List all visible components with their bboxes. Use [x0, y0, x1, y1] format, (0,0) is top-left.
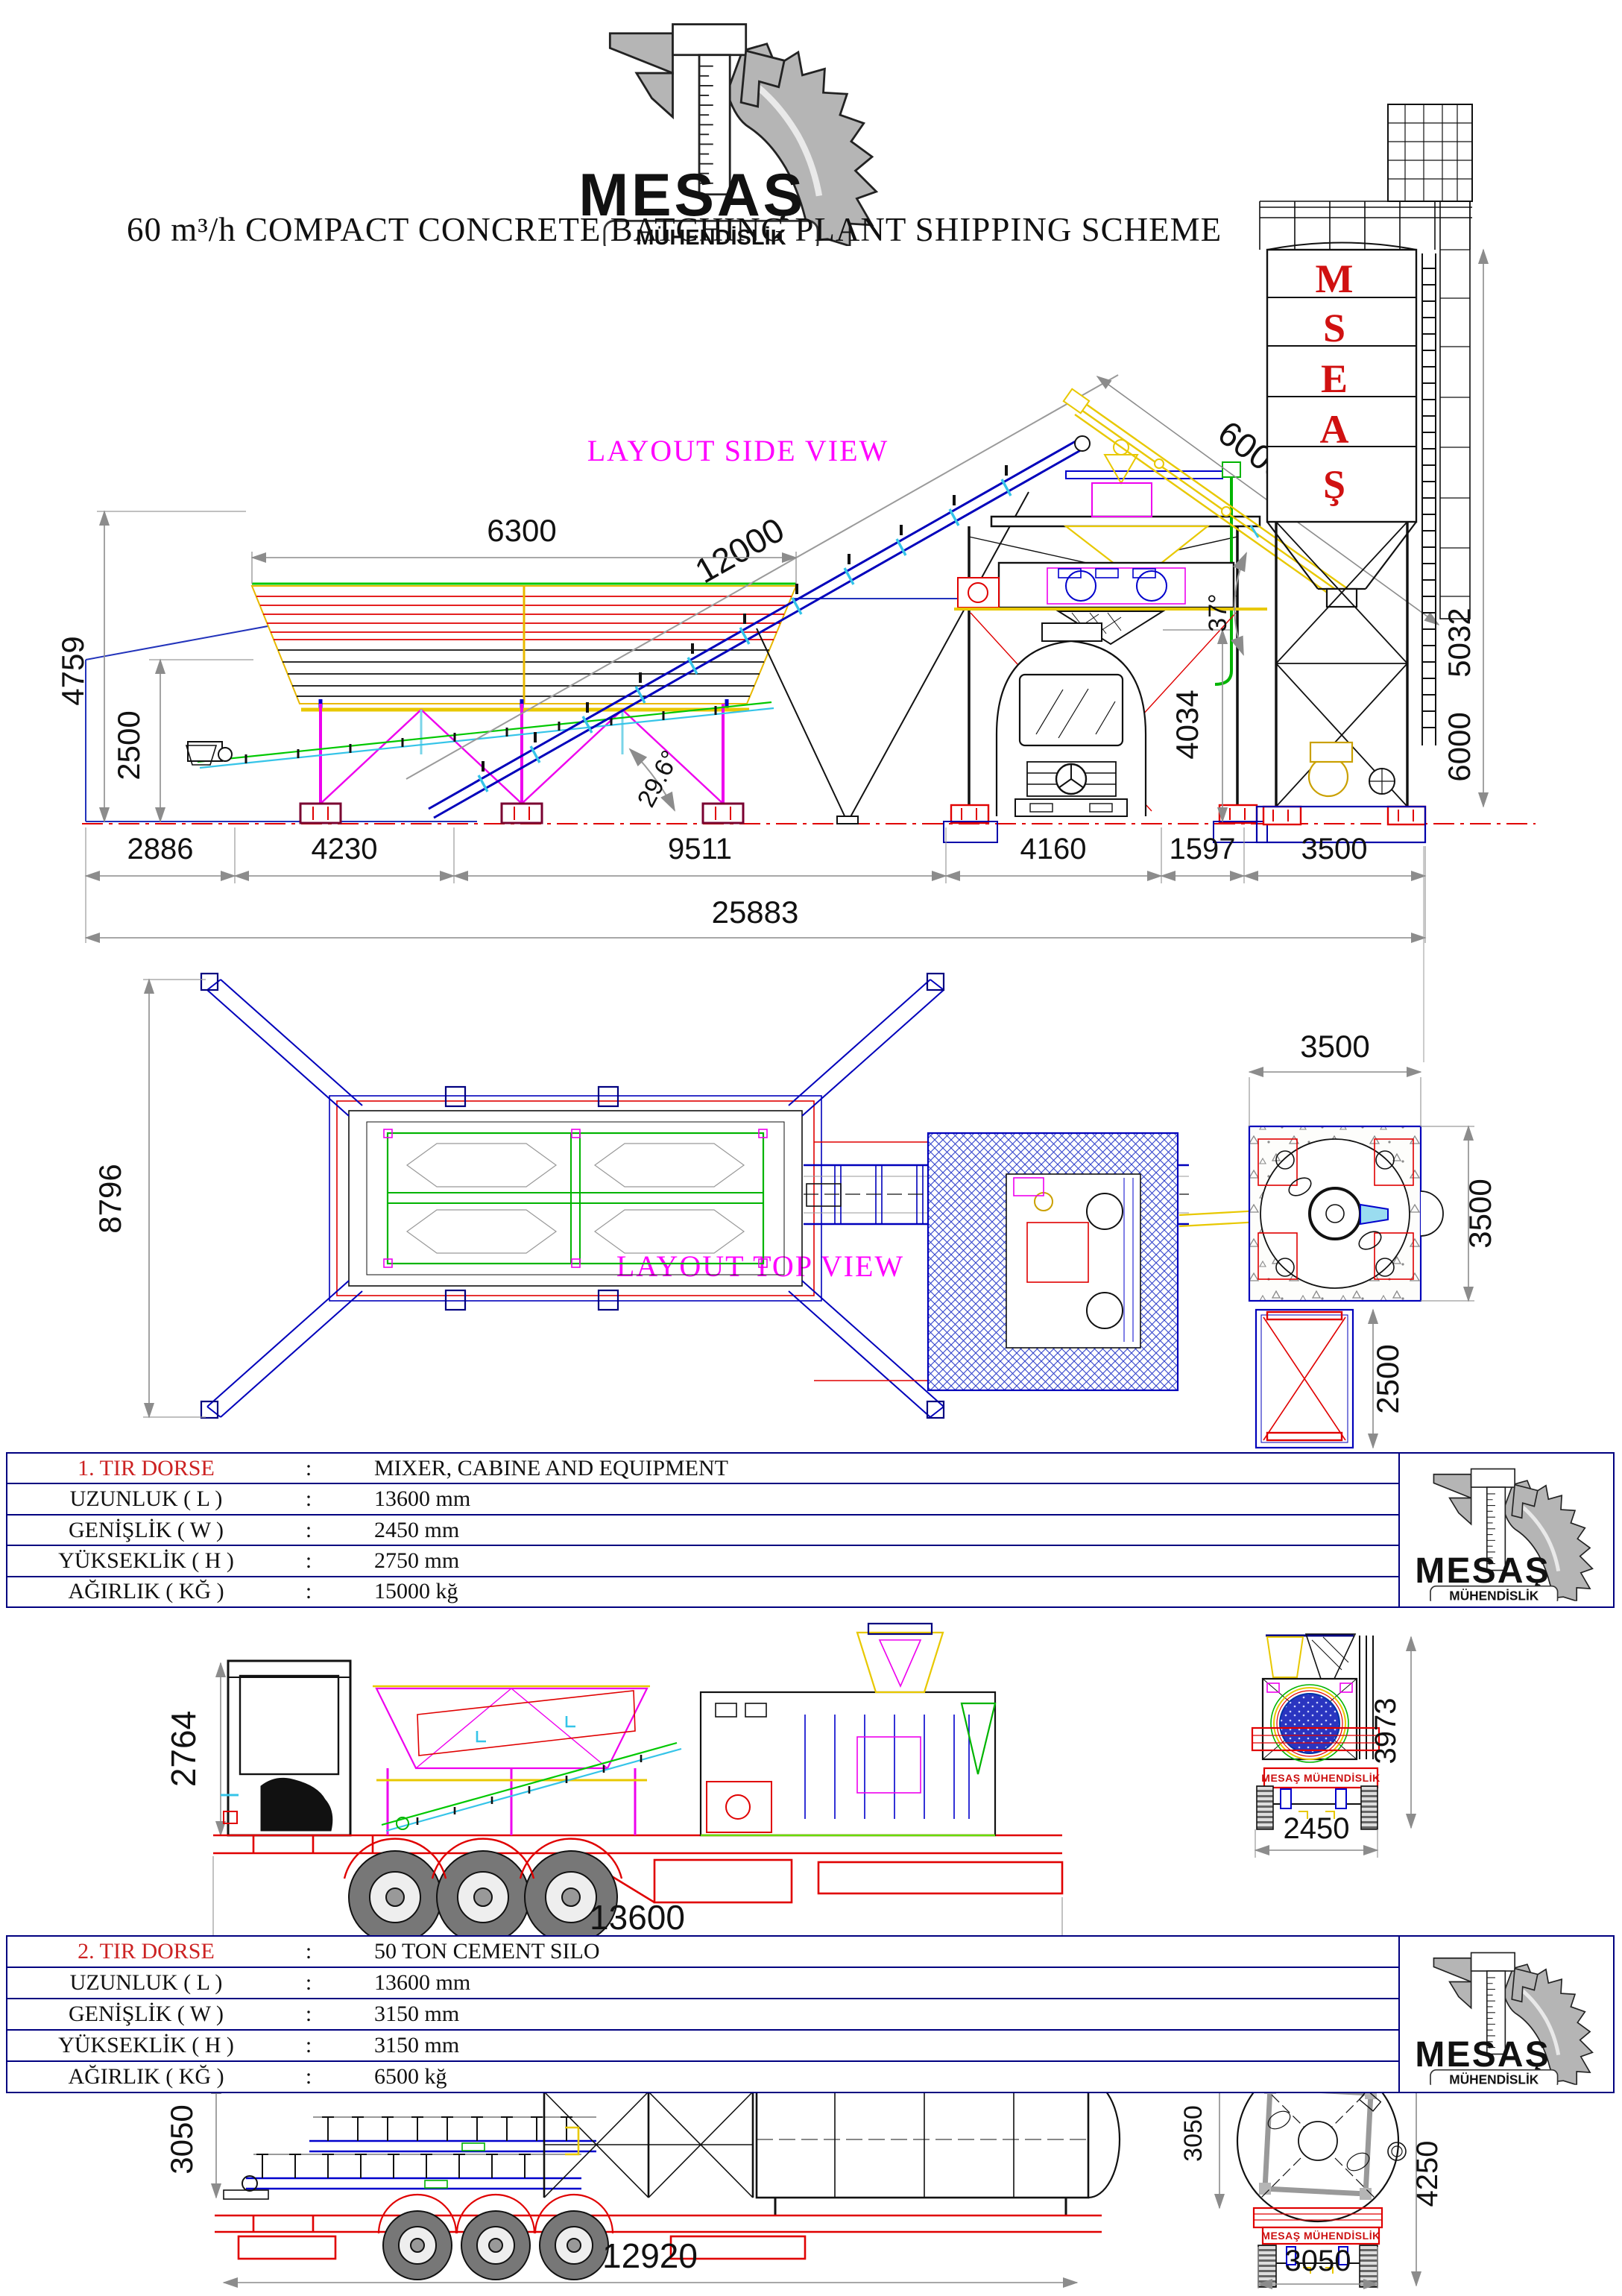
truck2-drawing: 3050: [164, 2060, 1444, 2289]
truck1-load-bin: [373, 1686, 681, 1835]
dim-silo-lower: 6000: [1442, 712, 1477, 781]
truck1-wheels: [344, 1839, 622, 1943]
table2-row-height: YÜKSEKLİK ( H ) : 3150 mm: [7, 2031, 1398, 2062]
table1-row4-colon: :: [285, 1579, 332, 1604]
spec-table-1: 1. TIR DORSE : MIXER, CABINE AND EQUIPME…: [6, 1452, 1615, 1608]
table1-row1-label: UZUNLUK ( L ): [7, 1486, 285, 1512]
compressor: [1309, 742, 1395, 796]
truck2-side: 3050: [164, 2080, 1120, 2283]
dim-chain-4: 4160: [1020, 833, 1087, 865]
dim-mixer-clearance: 4034: [1170, 690, 1205, 759]
dim-chain-6: 3500: [1301, 833, 1368, 865]
mixer-truck: [997, 623, 1146, 816]
silo-pad-top: 3500 3500: [1249, 846, 1498, 1301]
silo-ladder: [1422, 253, 1436, 745]
cabin-top: 2500: [1256, 1310, 1405, 1448]
table1-row-weight: AĞIRLIK ( KĞ ) : 15000 kğ: [7, 1577, 1398, 1606]
table2-colon: :: [285, 1939, 332, 1964]
table1-row2-colon: :: [285, 1518, 332, 1543]
table2-title-row: 2. TIR DORSE : 50 TON CEMENT SILO: [7, 1937, 1398, 1968]
truck2-silo-structure: [533, 2081, 1120, 2215]
dim-pit-height: 4759: [55, 636, 90, 705]
table1-row2-label: GENİŞLİK ( W ): [7, 1518, 285, 1543]
table2-row3-colon: :: [285, 2033, 332, 2058]
dim-bin-depth-group: 8796: [92, 980, 206, 1417]
dim-truck1-length: 13600: [590, 1898, 685, 1937]
dim-truck2-length: 12920: [602, 2236, 698, 2275]
mixer-drum: [1280, 1694, 1339, 1753]
table2-row3-value: 3150 mm: [332, 2033, 459, 2058]
dim-bin-depth: 8796: [92, 1164, 127, 1233]
table1-title-label: 1. TIR DORSE: [7, 1456, 285, 1481]
table1-logo: [1409, 1460, 1604, 1601]
table1-row3-colon: :: [285, 1548, 332, 1574]
truck2-rear: MESAŞ MÜHENDİSLİK 3050 4250 3050: [1179, 2060, 1444, 2289]
table2-row-width: GENİŞLİK ( W ) : 3150 mm: [7, 1999, 1398, 2031]
bottom-dim-chain: 2886 4230 9511 4160 1597 3500 25883: [86, 827, 1425, 943]
table2-row-length: UZUNLUK ( L ) : 13600 mm: [7, 1968, 1398, 1999]
dim-truck1-rear-width: 2450: [1284, 1812, 1350, 1845]
truck1-drawing: 2764: [164, 1624, 1411, 1952]
dim-truck2-rear-width: 3050: [1285, 2245, 1351, 2277]
table2-title-value: 50 TON CEMENT SILO: [332, 1939, 600, 1964]
truck2-wheels: [379, 2195, 613, 2280]
bin-top: [201, 974, 944, 1418]
table1-row-length: UZUNLUK ( L ) : 13600 mm: [7, 1484, 1398, 1515]
feeder-conveyor: [186, 702, 774, 768]
table2-logo-cell: [1400, 1937, 1613, 2092]
table1-row4-value: 15000 kğ: [332, 1579, 458, 1604]
dim-conveyor-length: 12000: [689, 510, 791, 590]
truck2-banner: MESAŞ MÜHENDİSLİK: [1261, 2230, 1380, 2242]
truck1-side: 2764: [164, 1624, 1062, 1952]
dim-truck2-height: 3050: [164, 2104, 199, 2174]
table1-colon: :: [285, 1456, 332, 1481]
dim-pad-depth: 3500: [1462, 1179, 1498, 1248]
table2-row1-value: 13600 mm: [332, 1970, 470, 1996]
table1-row1-value: 13600 mm: [332, 1486, 470, 1512]
drawing-title: 60 m³/h COMPACT CONCRETE BATCHING PLANT …: [127, 210, 1222, 249]
table2-row2-colon: :: [285, 2002, 332, 2027]
table1-row-height: YÜKSEKLİK ( H ) : 2750 mm: [7, 1546, 1398, 1577]
truck1-rear: MESAŞ MÜHENDİSLİK 3973 2450: [1252, 1634, 1411, 1858]
table1-row3-value: 2750 mm: [332, 1548, 459, 1574]
table1-row-width: GENİŞLİK ( W ) : 2450 mm: [7, 1516, 1398, 1546]
table1-title-row: 1. TIR DORSE : MIXER, CABINE AND EQUIPME…: [7, 1454, 1398, 1484]
dim-silo-upper: 5032: [1442, 608, 1477, 677]
table2-title-label: 2. TIR DORSE: [7, 1939, 285, 1964]
truck1-cab: [228, 1661, 350, 1835]
table2-row1-colon: :: [285, 1970, 332, 1996]
top-view-label: LAYOUT TOP VIEW: [616, 1249, 904, 1283]
conveyor-legs: [757, 492, 1029, 824]
table1-row1-colon: :: [285, 1486, 332, 1512]
table2-row2-value: 3150 mm: [332, 2002, 459, 2027]
dim-total-length: 25883: [712, 895, 799, 930]
table2-row3-label: YÜKSEKLİK ( H ): [7, 2033, 285, 2058]
dim-truck1-rear-height: 3973: [1369, 1698, 1402, 1764]
dim-truck2-rear-height: 4250: [1411, 2141, 1444, 2207]
table2-row1-label: UZUNLUK ( L ): [7, 1970, 285, 1996]
table2-row4-value: 6500 kğ: [332, 2064, 447, 2090]
table1-row3-label: YÜKSEKLİK ( H ): [7, 1548, 285, 1574]
svg-text:A: A: [1320, 407, 1349, 452]
pit-dims: 4759 2500: [55, 511, 253, 821]
dim-screw-angle: 37°: [1204, 593, 1232, 631]
truck1-load-mixer: [701, 1624, 995, 1835]
dim-truck2-rear-side: 3050: [1179, 2105, 1208, 2162]
svg-text:Ş: Ş: [1323, 462, 1345, 507]
dim-chain-5: 1597: [1170, 833, 1236, 865]
table2-logo: [1409, 1943, 1604, 2085]
truck1-banner: MESAŞ MÜHENDİSLİK: [1261, 1772, 1380, 1784]
table2-row4-label: AĞIRLIK ( KĞ ): [7, 2064, 285, 2090]
side-view-label: LAYOUT SIDE VIEW: [587, 434, 889, 467]
table1-row2-value: 2450 mm: [332, 1518, 459, 1543]
shipping-scheme-drawing: MESAŞ MÜHENDİSLİK LAYOUT SIDE VIEW: [0, 0, 1622, 2296]
table1-logo-cell: [1400, 1454, 1613, 1606]
dim-chain-2: 4230: [312, 833, 378, 865]
svg-text:E: E: [1321, 356, 1348, 401]
dim-bin-width: 6300: [487, 513, 556, 548]
table2-row2-label: GENİŞLİK ( W ): [7, 2002, 285, 2027]
dim-chain-1: 2886: [127, 833, 194, 865]
table1-row4-label: AĞIRLIK ( KĞ ): [7, 1579, 285, 1604]
table2-row-weight: AĞIRLIK ( KĞ ) : 6500 kğ: [7, 2062, 1398, 2092]
truck1-deck: [213, 1835, 1062, 1902]
truck2-conveyors: [224, 2117, 596, 2199]
dim-conveyor-angle: 29.6°: [632, 746, 685, 812]
cement-silo: M S E A Ş: [1257, 104, 1483, 842]
table2-row4-colon: :: [285, 2064, 332, 2090]
bin-top-legs: [207, 980, 944, 1417]
dim-chain-3: 9511: [668, 833, 732, 865]
svg-text:M: M: [1316, 256, 1354, 301]
dim-cabin-width: 2500: [1370, 1344, 1405, 1413]
layout-top-view: LAYOUT TOP VIEW: [92, 846, 1498, 1448]
svg-text:S: S: [1323, 306, 1345, 350]
dim-truck1-height: 2764: [164, 1711, 203, 1787]
table1-title-value: MIXER, CABINE AND EQUIPMENT: [332, 1456, 728, 1481]
dim-pad-width: 3500: [1300, 1029, 1369, 1064]
spec-table-2: 2. TIR DORSE : 50 TON CEMENT SILO UZUNLU…: [6, 1935, 1615, 2093]
dim-pit-depth: 2500: [111, 710, 146, 780]
